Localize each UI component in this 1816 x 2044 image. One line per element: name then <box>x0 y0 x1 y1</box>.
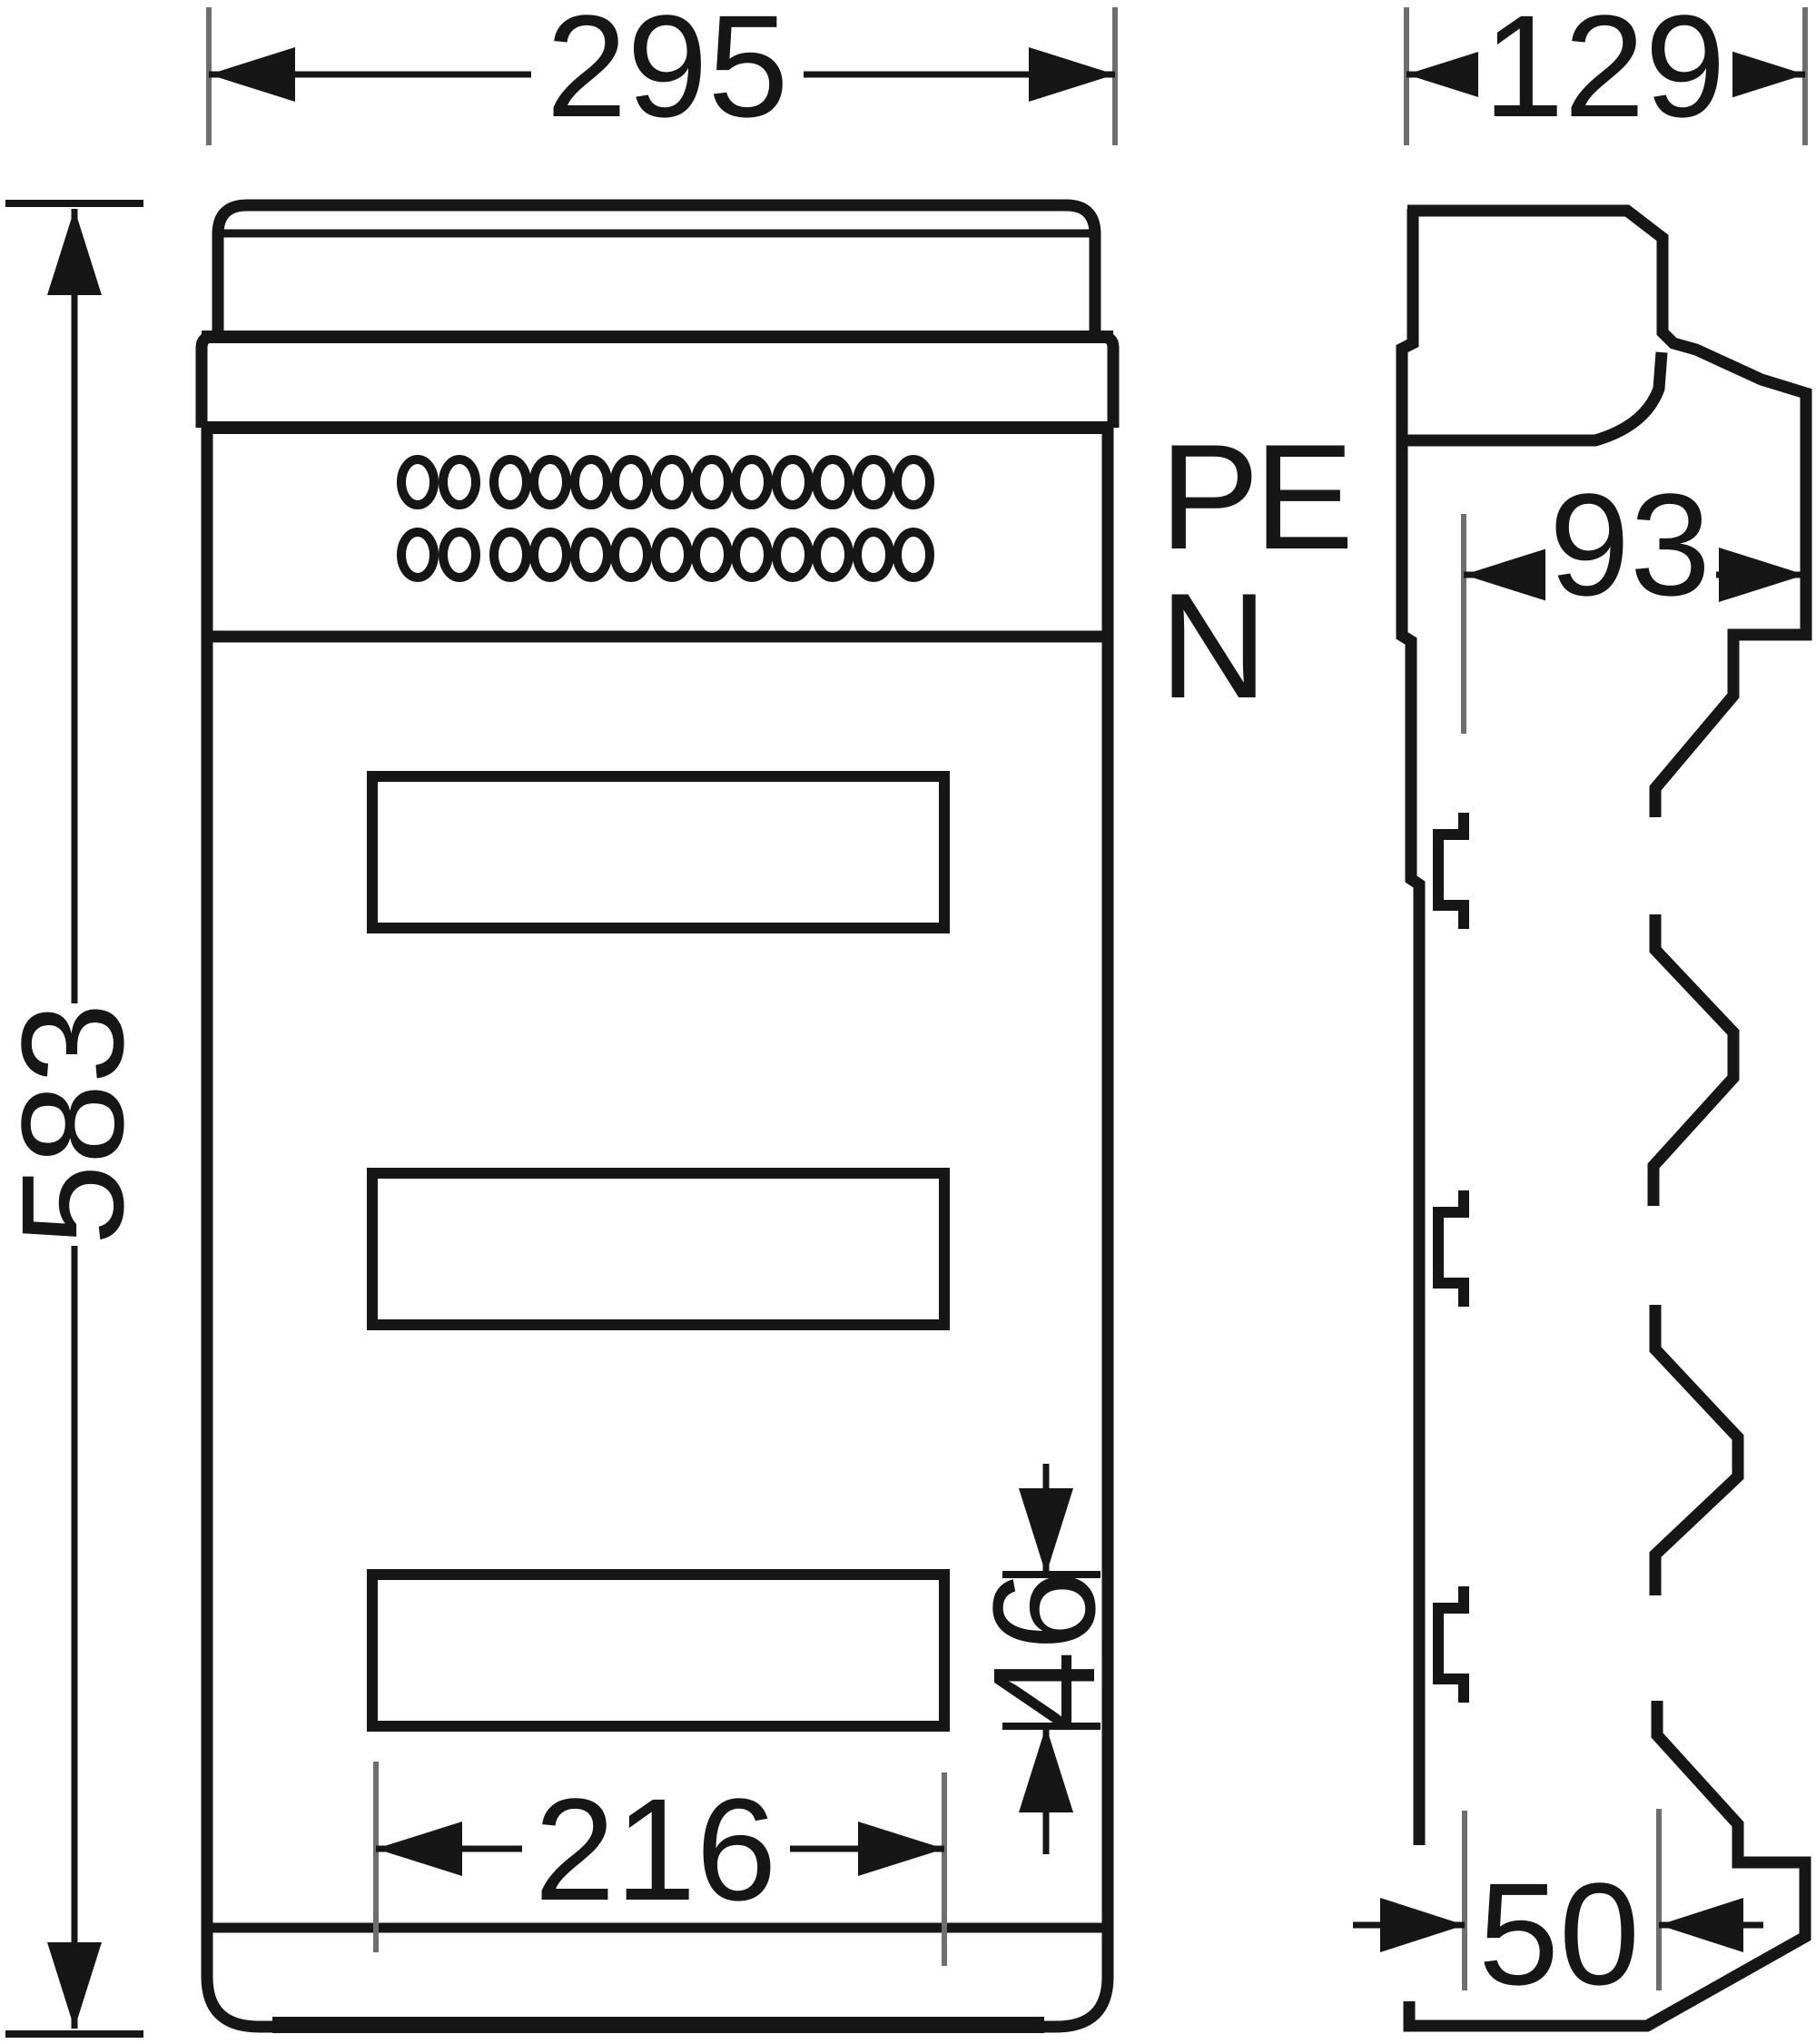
terminal-hole-rows <box>401 459 930 578</box>
arrowhead-left-icon <box>1464 548 1550 602</box>
front-view <box>202 205 1113 2027</box>
side-hood-inner-line <box>1407 352 1662 440</box>
dimension-value: 295 <box>547 0 789 147</box>
side-wave-segment-2 <box>1655 1305 1738 1595</box>
terminal-hole <box>401 459 434 505</box>
arrowhead-left-icon <box>1659 1898 1743 1952</box>
dimension-body-depth: 93 <box>1464 463 1805 734</box>
terminal-labels: PE N <box>1160 413 1348 729</box>
din-clip-1 <box>1438 813 1464 929</box>
technical-drawing: 295 583 216 46 129 <box>0 0 1816 2044</box>
front-cap-outline <box>218 205 1095 337</box>
terminal-hole <box>494 532 527 578</box>
terminal-hole <box>816 532 849 578</box>
din-clip-3 <box>1438 1586 1464 1703</box>
terminal-hole <box>615 459 647 505</box>
front-tier-outline <box>202 337 1113 428</box>
dimension-overall-depth: 129 <box>1406 0 1805 147</box>
din-clip-2 <box>1438 1190 1464 1307</box>
terminal-hole <box>534 459 567 505</box>
terminal-hole <box>443 459 476 505</box>
pe-terminal-label: PE <box>1160 413 1348 580</box>
dimension-value: 93 <box>1549 463 1711 626</box>
dimension-cutout-width: 216 <box>376 1762 944 1966</box>
neutral-terminal-label: N <box>1160 562 1262 729</box>
terminal-hole <box>857 532 890 578</box>
cutout-window-1 <box>372 776 944 928</box>
terminal-hole <box>735 532 768 578</box>
side-wave-segment-1 <box>1653 914 1733 1206</box>
dimension-value: 46 <box>962 1570 1125 1732</box>
terminal-hole <box>656 459 688 505</box>
terminal-hole <box>816 459 849 505</box>
terminal-hole <box>696 459 728 505</box>
arrowhead-left-icon <box>376 1822 462 1876</box>
arrowhead-down-icon <box>1019 1488 1073 1575</box>
terminal-hole <box>534 532 567 578</box>
dimension-value: 216 <box>535 1768 777 1930</box>
arrowhead-up-icon <box>47 209 102 295</box>
arrowhead-left-icon <box>209 47 295 102</box>
arrowhead-right-icon <box>1029 47 1115 102</box>
terminal-hole <box>401 532 434 578</box>
terminal-hole <box>443 532 476 578</box>
cutout-window-2 <box>372 1173 944 1325</box>
terminal-hole <box>735 459 768 505</box>
side-back-edge <box>1402 209 1419 1845</box>
terminal-hole <box>776 532 809 578</box>
terminal-hole <box>656 532 688 578</box>
dimension-cutout-height: 46 <box>962 1464 1125 1854</box>
arrowhead-right-icon <box>1380 1898 1465 1952</box>
dimension-overall-height: 583 <box>0 203 153 2034</box>
terminal-hole <box>575 459 607 505</box>
terminal-hole <box>897 532 930 578</box>
dimension-overall-width: 295 <box>209 0 1115 147</box>
terminal-hole <box>857 459 890 505</box>
cutout-window-3 <box>372 1575 944 1726</box>
dimension-value: 583 <box>0 1003 153 1246</box>
arrowhead-right-icon <box>1719 548 1805 602</box>
arrowhead-right-icon <box>858 1822 944 1876</box>
arrowhead-down-icon <box>47 1942 102 2029</box>
terminal-hole <box>897 459 930 505</box>
arrowhead-up-icon <box>1019 1726 1073 1812</box>
terminal-hole <box>615 532 647 578</box>
terminal-hole <box>494 459 527 505</box>
dimension-value: 129 <box>1484 0 1726 147</box>
dimension-value: 50 <box>1478 1852 1640 2015</box>
terminal-hole <box>776 459 809 505</box>
terminal-hole <box>575 532 607 578</box>
terminal-hole <box>696 532 728 578</box>
